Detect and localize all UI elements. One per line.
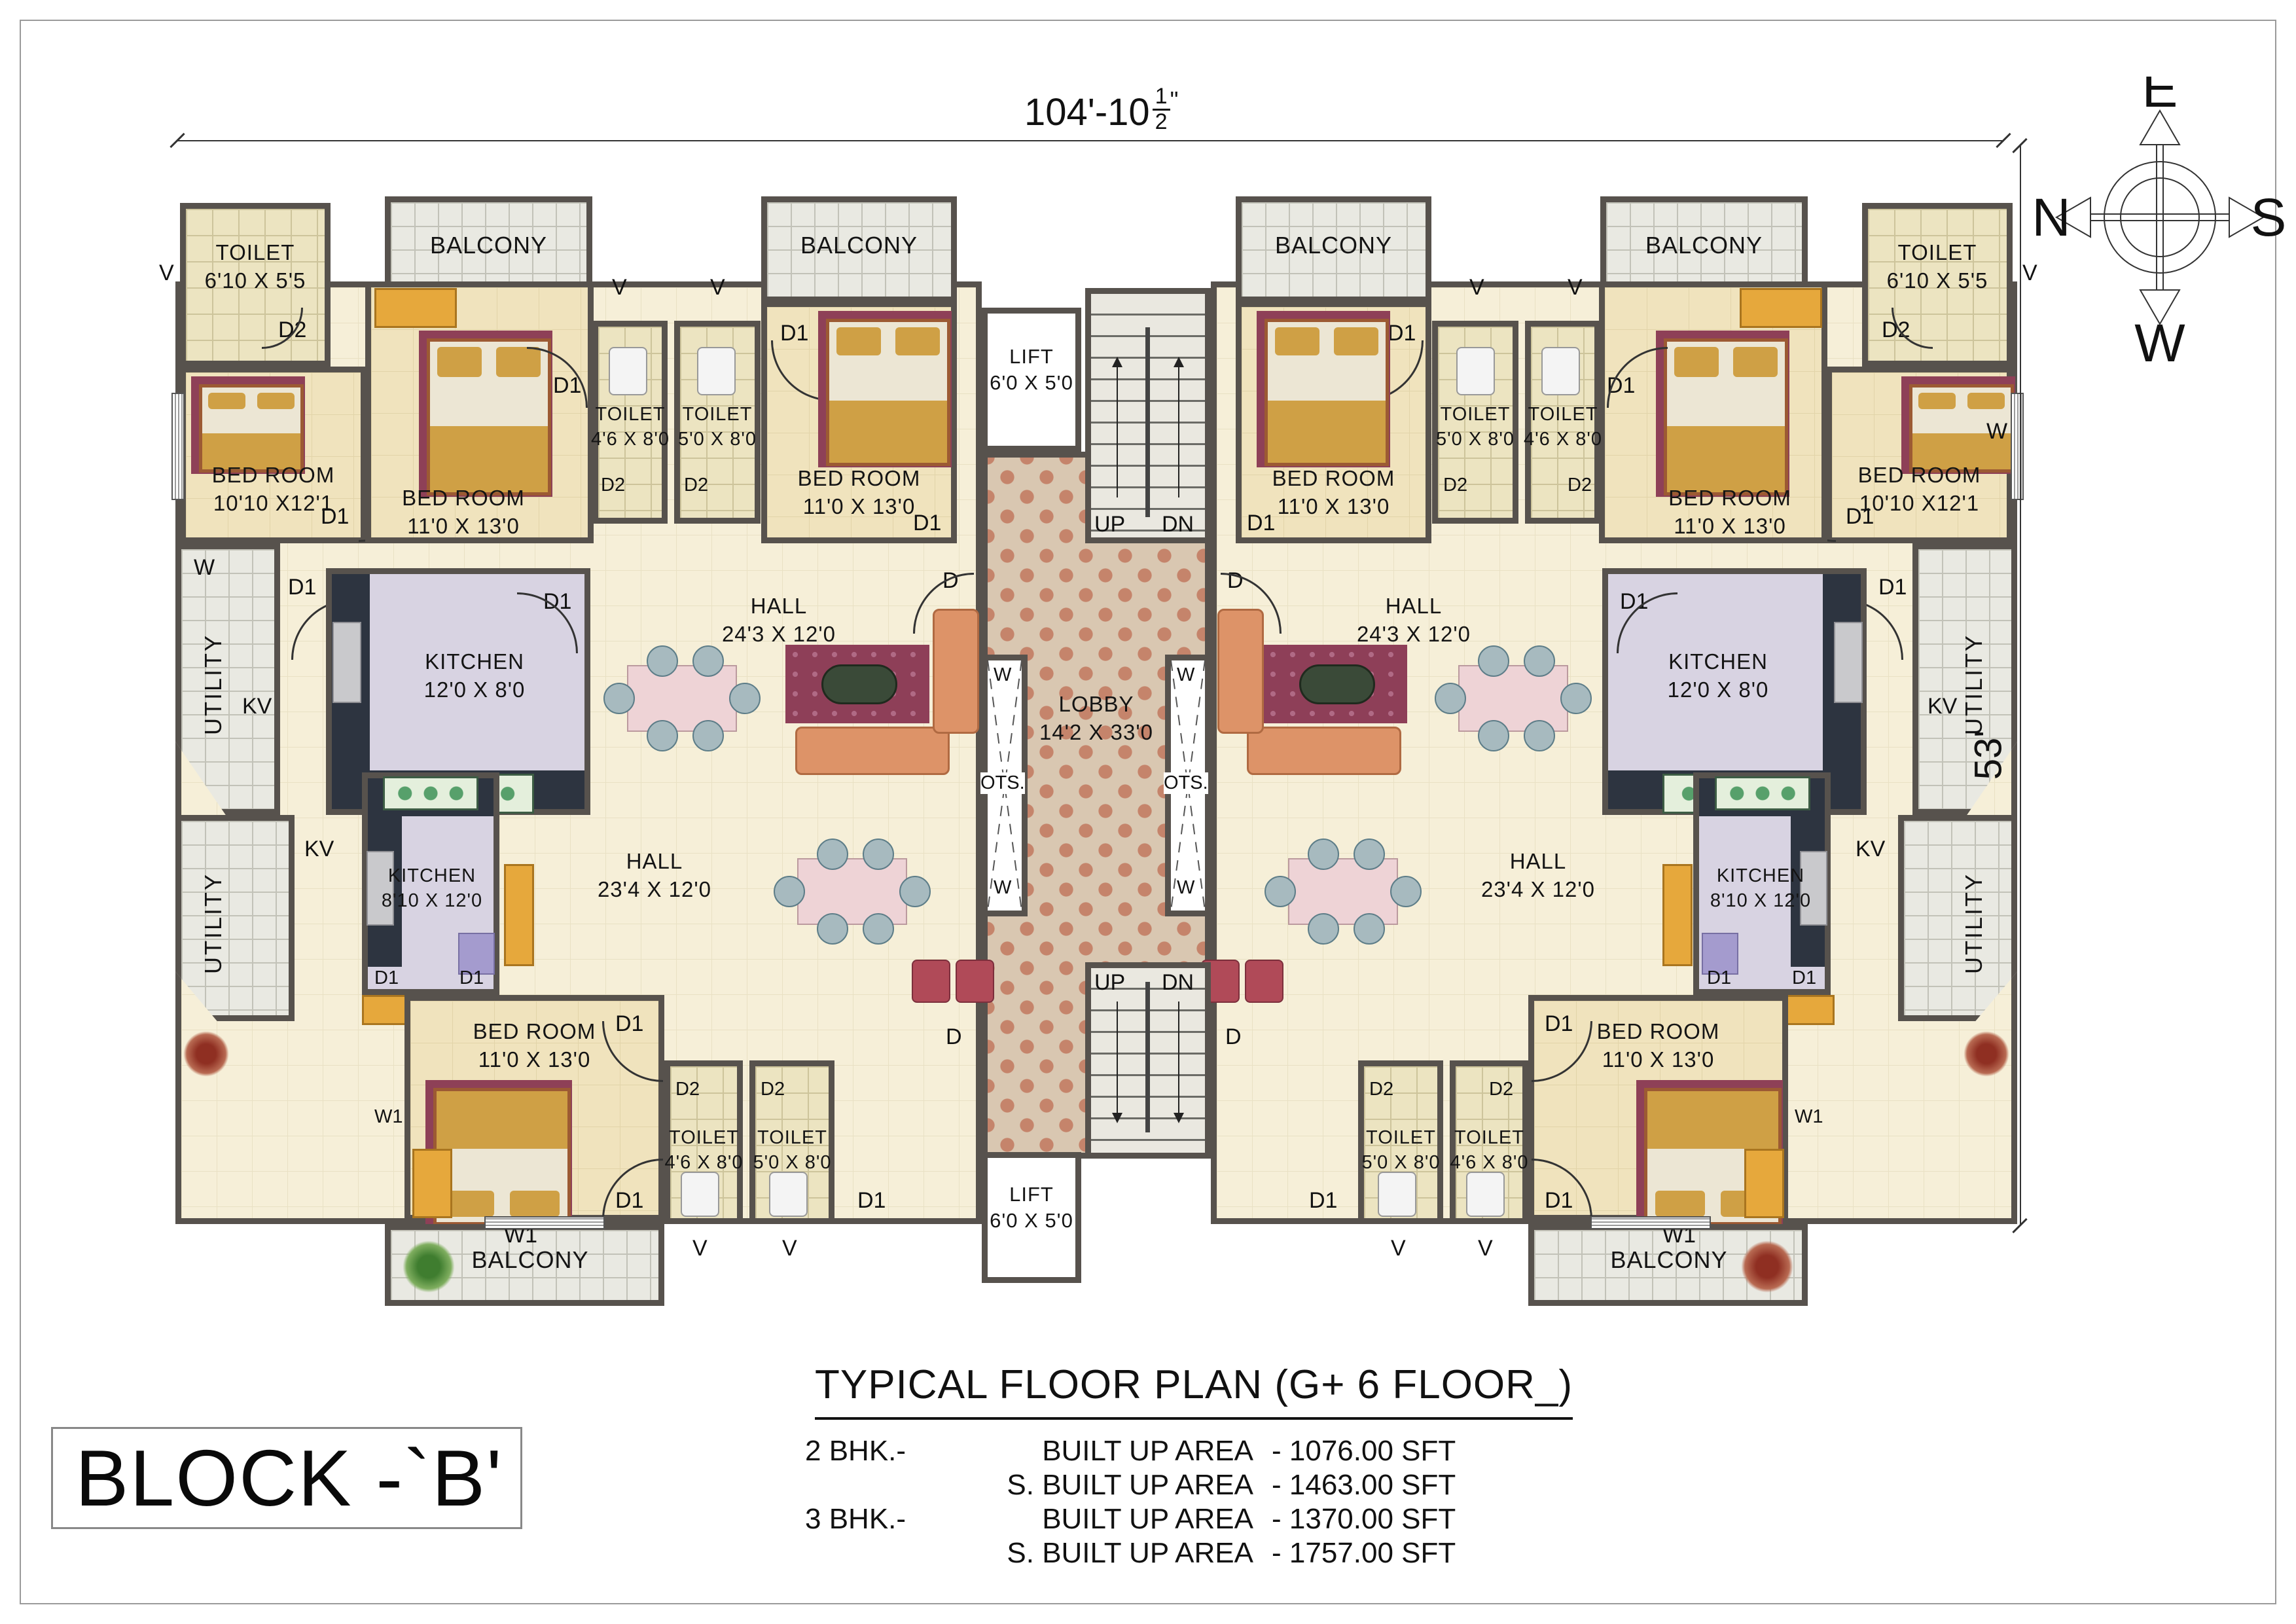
hall-bottom-right-label: HALL23'4 X 12'0 [1430,848,1646,904]
plant [1741,1240,1793,1293]
stove [383,776,478,810]
utility-bottom-right [1898,815,2017,1021]
blanket [437,1091,567,1149]
plant [403,1240,455,1293]
toilet-46-label: TOILET4'6 X 8'0 [584,403,676,452]
door-mark: D1 [1792,967,1816,989]
window-mark: W [1986,419,2007,444]
chair [1354,839,1385,870]
toilet-fixture [1378,1172,1416,1217]
stair-arrow [1117,1001,1118,1113]
kitchen-bottom-left-label: KITCHEN8'10 X 12'0 [357,864,507,913]
kitchen-bottom-right-label: KITCHEN8'10 X 12'0 [1685,864,1836,913]
door-mark: D1 [288,575,316,600]
bed [818,311,952,467]
plant [1964,1031,2009,1077]
kitchen-sink [1834,622,1863,703]
bed [191,376,305,474]
utility-bottom-left [175,815,295,1021]
door-mark: D2 [1443,475,1467,496]
window [1590,1216,1711,1229]
area-row: S. BUILT UP AREA- 1757.00 SFT [805,1537,1456,1570]
vent-mark: V [612,275,627,300]
blanket [1647,1091,1778,1149]
plant [183,1031,229,1077]
pillow [257,393,295,409]
dimension-width-text: 104'-10 12 " [1024,90,1178,134]
pillow [437,347,482,377]
armchair [912,960,950,1003]
tv-unit [1662,864,1693,966]
chair [1524,645,1555,677]
window-mark: W1 [374,1106,403,1128]
chair [1560,683,1592,714]
door-mark: D1 [1247,511,1275,536]
stair-dn-mark: DN [1162,970,1194,996]
vent-mark: V [710,275,725,300]
compass-east: E [2142,77,2178,118]
door-mark: D2 [1369,1079,1393,1100]
toilet-50-label: TOILET5'0 X 8'0 [1427,403,1524,452]
door-mark: D2 [684,475,708,496]
block-name: BLOCK -`B' [51,1427,522,1529]
window [2011,393,2024,500]
pillow [1655,1191,1705,1217]
sofa [1247,727,1401,775]
chair [1308,913,1339,945]
vent-mark: V [1469,275,1484,300]
door-mark: D [946,1024,962,1050]
toilet-fixture [697,347,736,395]
kitchen-top-left-label: KITCHEN12'0 X 8'0 [367,648,583,704]
lift-top-label: LIFT6'0 X 5'0 [983,344,1080,397]
pillow [1275,327,1319,355]
chair [817,913,848,945]
chair [899,876,931,907]
toilet-50-label: TOILET5'0 X 8'0 [669,403,766,452]
door-mark: D2 [761,1079,785,1100]
stair-arrow [1178,367,1179,497]
area-row: 2 BHK.-BUILT UP AREA- 1076.00 SFT [805,1435,1456,1468]
toilet-50-label: TOILET5'0 X 8'0 [1354,1126,1448,1175]
window-mark: W [994,877,1011,899]
pillow [1918,393,1956,409]
window-mark: W [1177,877,1194,899]
tv-unit [504,864,534,966]
chair [647,645,678,677]
dining-table [1458,665,1568,732]
coffee-table [821,664,897,704]
chair [647,720,678,751]
toilet-46-label: TOILET4'6 X 8'0 [656,1126,751,1175]
chair [1308,839,1339,870]
pillow [1733,347,1778,377]
wardrobe [412,1149,452,1218]
compass-west: W [2134,314,2185,365]
dimension-line-height [2020,145,2021,1225]
toilet-fixture [1466,1172,1505,1217]
door-mark: D1 [374,967,399,989]
vent-mark: V [159,261,174,286]
wardrobe [374,288,457,328]
door-mark: D2 [1489,1079,1513,1100]
balcony-label: BALCONY [1242,230,1425,261]
compass-north: N [2032,188,2070,247]
dining-set [609,648,753,746]
bed-mattress [1265,319,1389,466]
coffee-table [1299,664,1375,704]
stair-arrow-head [1174,1113,1184,1123]
chair [1390,876,1422,907]
window-mark: W1 [1795,1106,1823,1128]
chair [603,683,635,714]
toilet-fixture [681,1172,719,1217]
chair [1265,876,1296,907]
vent-mark: V [1391,1236,1406,1261]
utility-label: UTILITY [200,609,227,759]
stair-up-mark: UP [1094,512,1125,537]
dining-table [1288,858,1398,925]
stair-arrow [1117,367,1118,497]
stair-rail [1145,982,1150,1132]
hall-bottom-left-label: HALL23'4 X 12'0 [547,848,762,904]
toilet-46-label: TOILET4'6 X 8'0 [1517,403,1609,452]
kitchen-top-right-label: KITCHEN12'0 X 8'0 [1610,648,1826,704]
ots-mark: OTS. [980,772,1025,794]
door-mark: D1 [459,967,484,989]
stair-arrow-head [1174,357,1184,367]
chair [1435,683,1466,714]
armchair [1245,960,1283,1003]
toilet-50-label: TOILET5'0 X 8'0 [745,1126,840,1175]
pillow [1334,327,1378,355]
door-mark: D1 [1846,504,1874,530]
chair [1478,645,1509,677]
door-mark: D1 [1707,967,1731,989]
chair [1524,720,1555,751]
toilet-corner-top-right-label: TOILET6'10 X 5'5 [1869,239,2006,295]
blanket [829,401,947,463]
chair [774,876,805,907]
window-mark: W [1177,664,1194,686]
pillow [1967,393,2005,409]
door-mark: D1 [321,504,349,530]
hall-top-right-label: HALL24'3 X 12'0 [1296,592,1532,649]
chair [692,720,724,751]
bed-mattress [199,384,304,473]
area-row: 3 BHK.-BUILT UP AREA- 1370.00 SFT [805,1503,1456,1536]
dining-table [797,858,907,925]
kv-mark: KV [242,694,272,719]
toilet-46-label: TOILET4'6 X 8'0 [1442,1126,1537,1175]
pillow [510,1191,560,1217]
dining-table [627,665,737,732]
vent-mark: V [692,1236,708,1261]
dimension-line-width [177,140,2003,141]
vent-mark: V [1478,1236,1493,1261]
blanket [1268,401,1386,463]
pillow [895,327,940,355]
compass-rose-icon: E N S W [2029,77,2291,365]
toilet-fixture [769,1172,808,1217]
area-row: S. BUILT UP AREA- 1463.00 SFT [805,1469,1456,1502]
pillow [836,327,881,355]
bedroom-top-right-2-label: BED ROOM11'0 X 13'0 [1638,484,1821,541]
utility-label: UTILITY [1960,857,1988,988]
stair-dn-mark: DN [1162,512,1194,537]
kv-mark: KV [1856,837,1885,862]
window-mark: W [194,555,215,581]
window [484,1216,605,1229]
dimension-width-fraction: 12 [1153,85,1170,134]
door-mark: D2 [1568,475,1592,496]
blanket [430,426,548,492]
utility-label: UTILITY [200,857,227,988]
door-mark: D [1225,1024,1242,1050]
door-mark: D1 [1309,1188,1337,1214]
toilet-corner-top-left-label: TOILET6'10 X 5'5 [187,239,324,295]
chair [1354,913,1385,945]
balcony-label: BALCONY [1607,230,1801,261]
stair-arrow [1178,1001,1179,1113]
chair [863,913,894,945]
bed-mattress [826,319,950,466]
chair [692,645,724,677]
door-mark: D1 [857,1188,886,1214]
kv-mark: KV [304,837,334,862]
door-mark: D2 [601,475,625,496]
blanket [1667,426,1785,492]
door-mark: D2 [675,1079,700,1100]
balcony-label: BALCONY [458,1245,602,1276]
lift-bottom-label: LIFT6'0 X 5'0 [983,1182,1080,1235]
stove [1715,776,1810,810]
dining-set [779,841,923,939]
window-mark: W [994,664,1011,686]
dining-set [1440,648,1584,746]
balcony-label: BALCONY [1597,1245,1741,1276]
floor-plan-sheet: TOILET6'10 X 5'5 D2 BALCONY W1 BALCONY W… [0,0,2296,1624]
stair-arrow-head [1112,357,1122,367]
wardrobe [1744,1149,1784,1218]
toilet-fixture [609,347,647,395]
pillow [208,393,245,409]
bed-mattress [433,1088,571,1225]
wardrobe [1740,288,1822,328]
chair [863,839,894,870]
hall-top-left-label: HALL24'3 X 12'0 [661,592,897,649]
door-mark: D1 [913,511,941,536]
compass-south: S [2251,188,2287,247]
vent-mark: V [782,1236,797,1261]
window [171,393,185,500]
dining-set [1270,841,1414,939]
dimension-width-unit: " [1170,86,1179,114]
toilet-fixture [1456,347,1495,395]
kv-mark: KV [1928,694,1957,719]
chair [1478,720,1509,751]
chair [729,683,761,714]
plan-title: TYPICAL FLOOR PLAN (G+ 6 FLOOR_) [815,1362,1573,1420]
dimension-height-text: 53' [1966,731,2010,780]
dimension-width-feet: 104'-10 [1024,90,1150,134]
sofa [795,727,950,775]
bed [1257,311,1390,467]
bed [1656,331,1789,497]
kitchen-sink [332,622,361,703]
balcony-label: BALCONY [391,230,586,261]
stair-up-mark: UP [1094,970,1125,996]
bedroom-top-left-2-label: BED ROOM11'0 X 13'0 [372,484,555,541]
pillow [1674,347,1719,377]
ots-mark: OTS. [1164,772,1208,794]
balcony-label: BALCONY [768,230,950,261]
stair-rail [1145,327,1150,517]
toilet-fixture [1541,347,1580,395]
vent-mark: V [1568,275,1583,300]
stair-arrow-head [1112,1113,1122,1123]
bed-mattress [1664,338,1788,496]
door-mark: D1 [1878,575,1907,600]
chair [817,839,848,870]
armchair [956,960,994,1003]
